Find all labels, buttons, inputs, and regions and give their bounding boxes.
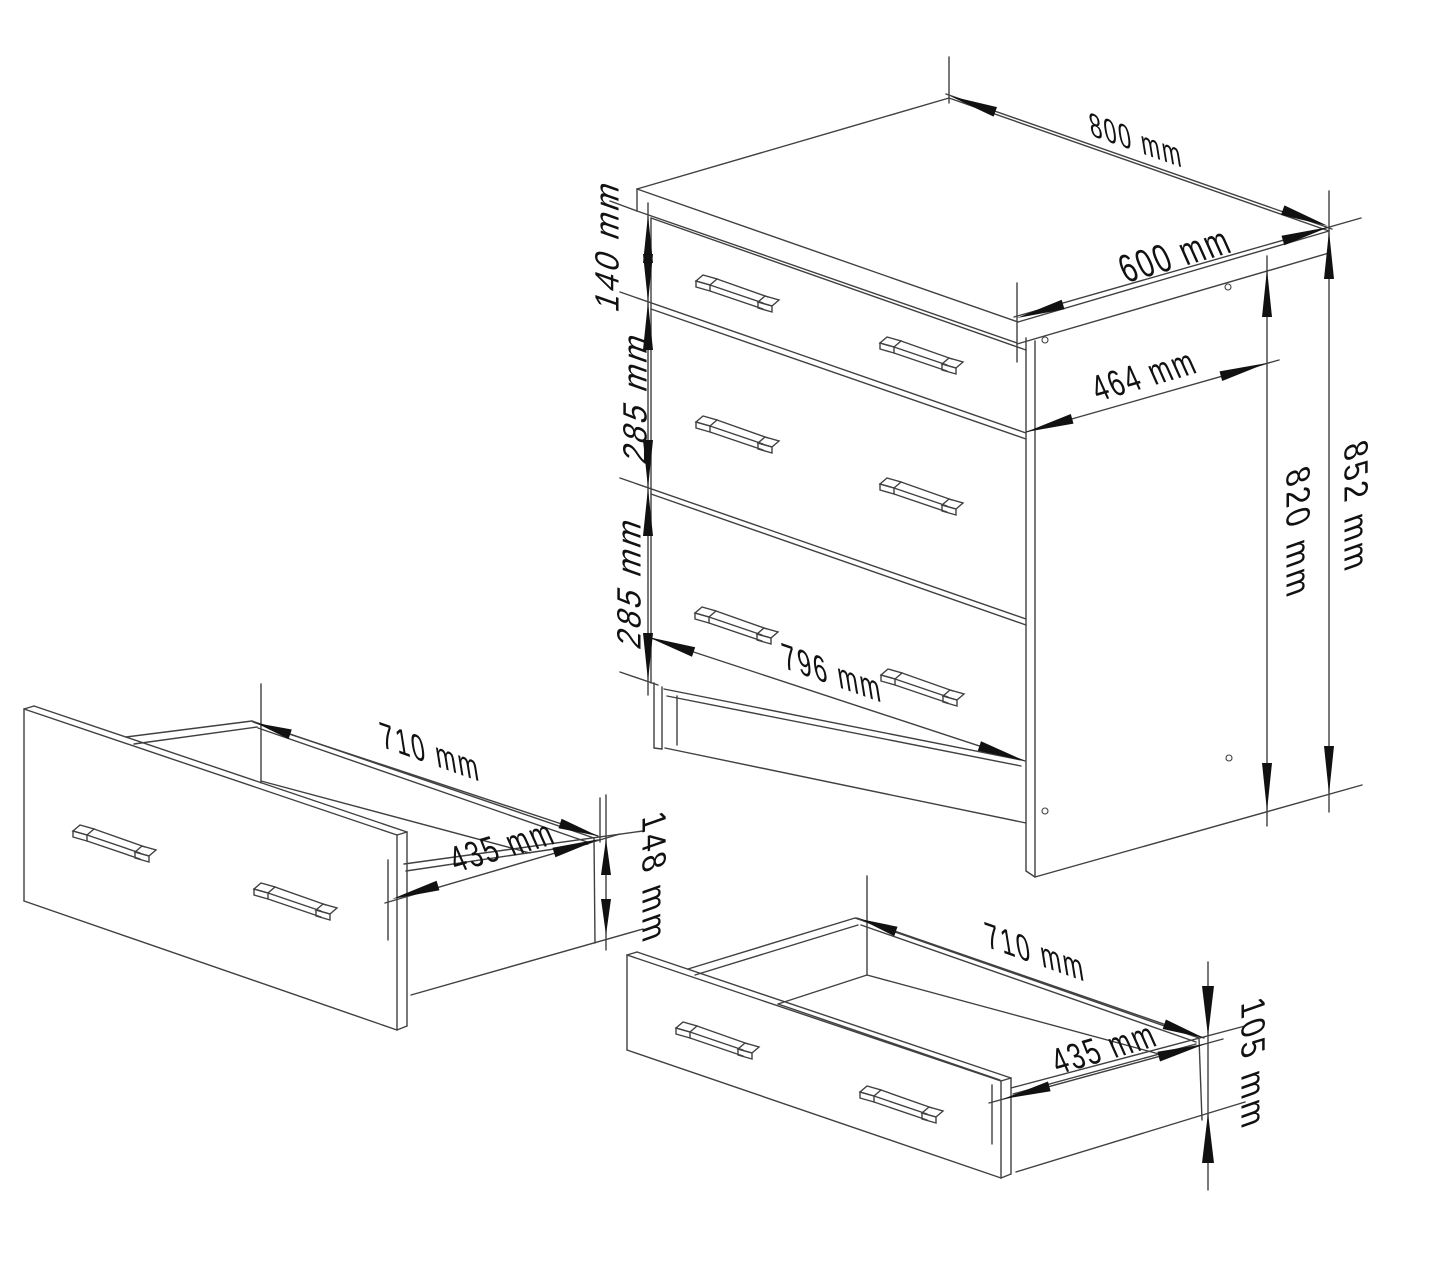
svg-text:105 mm: 105 mm [1233, 992, 1270, 1135]
svg-text:285 mm: 285 mm [611, 510, 648, 653]
svg-text:140 mm: 140 mm [589, 173, 626, 316]
svg-text:820 mm: 820 mm [1278, 461, 1315, 604]
svg-text:285 mm: 285 mm [617, 325, 654, 468]
svg-text:148 mm: 148 mm [634, 806, 671, 949]
svg-text:852 mm: 852 mm [1336, 435, 1373, 578]
